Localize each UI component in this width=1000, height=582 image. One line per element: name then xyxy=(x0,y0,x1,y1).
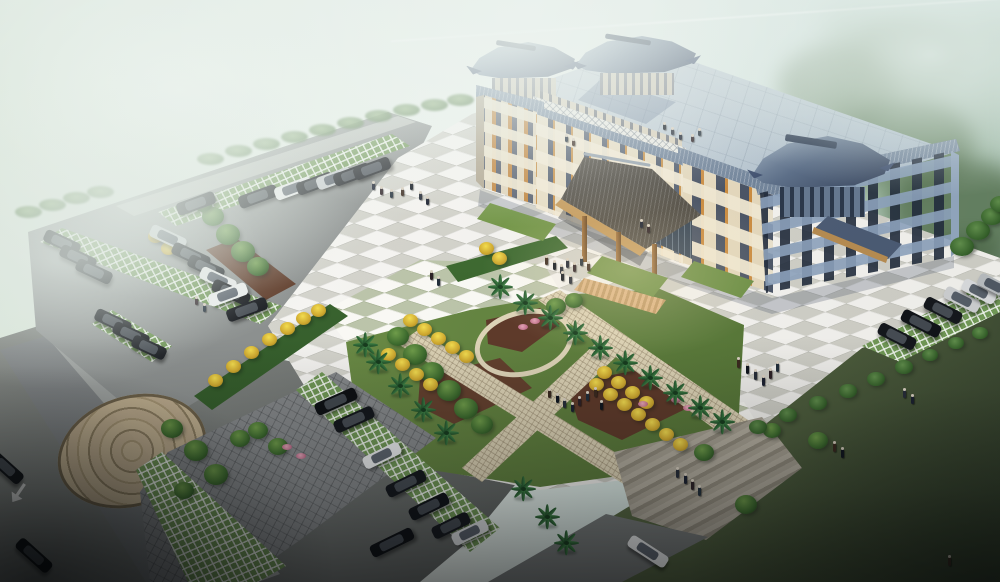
vignette-overlay xyxy=(0,0,1000,582)
aerial-architectural-rendering xyxy=(0,0,1000,582)
